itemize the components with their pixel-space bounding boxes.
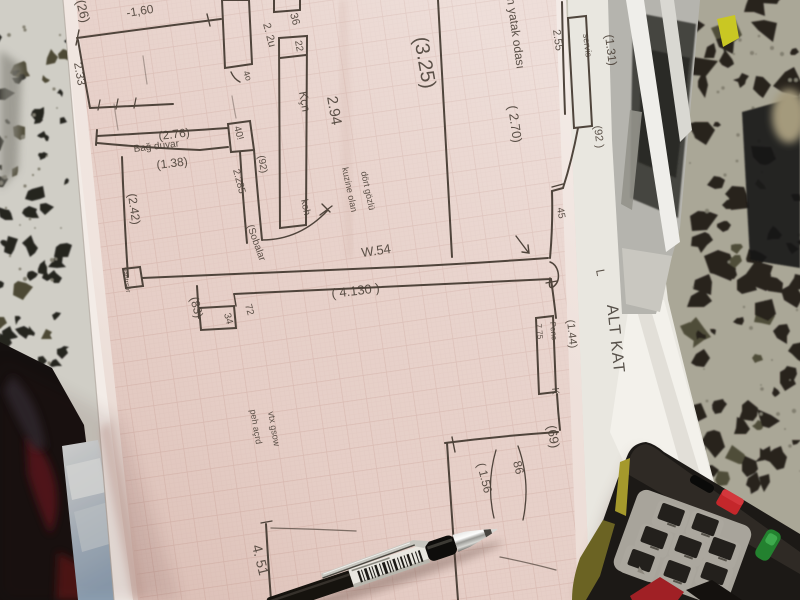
svg-text:7.75: 7.75 [534,323,545,340]
svg-text:Penc: Penc [548,321,559,340]
